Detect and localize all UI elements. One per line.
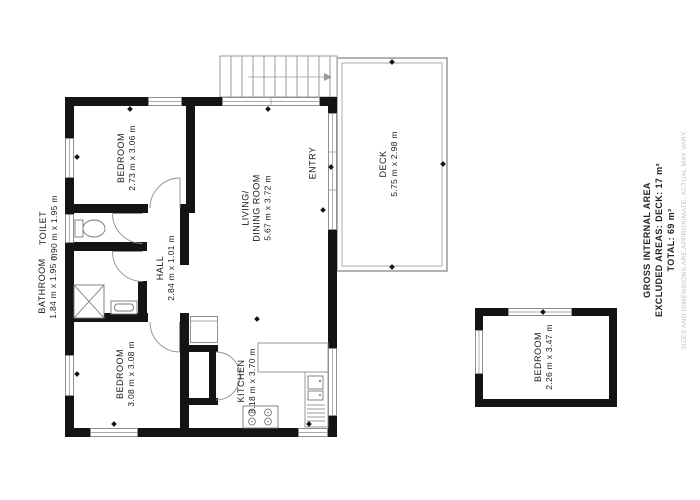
floor-plan-drawing <box>0 0 700 500</box>
room-label-entry: ENTRY <box>308 147 319 180</box>
window-top-living <box>223 98 320 106</box>
window-right-kitchen <box>329 349 337 416</box>
toilet-fixture <box>75 220 105 237</box>
room-label-deck: DECK 5.75 m x 2.98 m <box>378 131 400 196</box>
room-label-toilet: TOILET 0.90 m x 1.95 m <box>38 195 60 260</box>
staircase <box>220 56 337 97</box>
closet-upper <box>191 317 218 343</box>
room-label-bedroom-bottom: BEDROOM 3.08 m x 3.08 m <box>115 341 137 406</box>
floor-plan-page: BEDROOM 2.73 m x 3.06 m TOILET 0.90 m x … <box>0 0 700 500</box>
door-bathroom <box>113 252 143 282</box>
door-bedroom-bottom <box>150 322 180 352</box>
room-label-bathroom: BATHROOM 1.84 m x 1.95 m <box>37 253 59 318</box>
door-bedroom-top <box>150 178 180 208</box>
gross-internal-area-line: GROSS INTERNAL AREA <box>641 130 653 350</box>
window-left-toilet <box>66 215 74 243</box>
shower <box>74 285 104 318</box>
window-bottom-kitchen <box>299 429 328 437</box>
room-label-living-dining: LIVING/ DINING ROOM 5.67 m x 3.72 m <box>241 174 274 242</box>
main-house-walls <box>65 97 337 437</box>
entry-sliding-door <box>329 114 337 230</box>
windows <box>66 98 337 437</box>
window-left-bedroom-bottom <box>66 356 74 396</box>
room-label-bedroom-top: BEDROOM 2.73 m x 3.06 m <box>116 125 138 190</box>
room-label-hall: HALL 2.84 m x 1.01 m <box>155 235 177 300</box>
window-top-bedroom <box>149 98 182 106</box>
total-area-line: TOTAL: 69 m² <box>665 130 677 350</box>
window-bottom-bedroom <box>91 429 138 437</box>
excluded-areas-line: EXCLUDED AREAS: DECK: 17 m² <box>653 130 665 350</box>
window-left-bedroom-top <box>66 139 74 178</box>
disclaimer-line: SIZES AND DIMENSIONS ARE APPROXIMATE, AC… <box>679 130 691 350</box>
area-summary: GROSS INTERNAL AREA EXCLUDED AREAS: DECK… <box>641 130 691 350</box>
room-label-bedroom-separate: BEDROOM 2.26 m x 3.47 m <box>533 324 555 389</box>
bathroom-sink <box>111 301 137 314</box>
room-label-kitchen: KITCHEN 3.18 m x 3.70 m <box>236 348 258 413</box>
separate-bedroom-windows <box>476 309 572 374</box>
door-toilet <box>113 214 143 244</box>
